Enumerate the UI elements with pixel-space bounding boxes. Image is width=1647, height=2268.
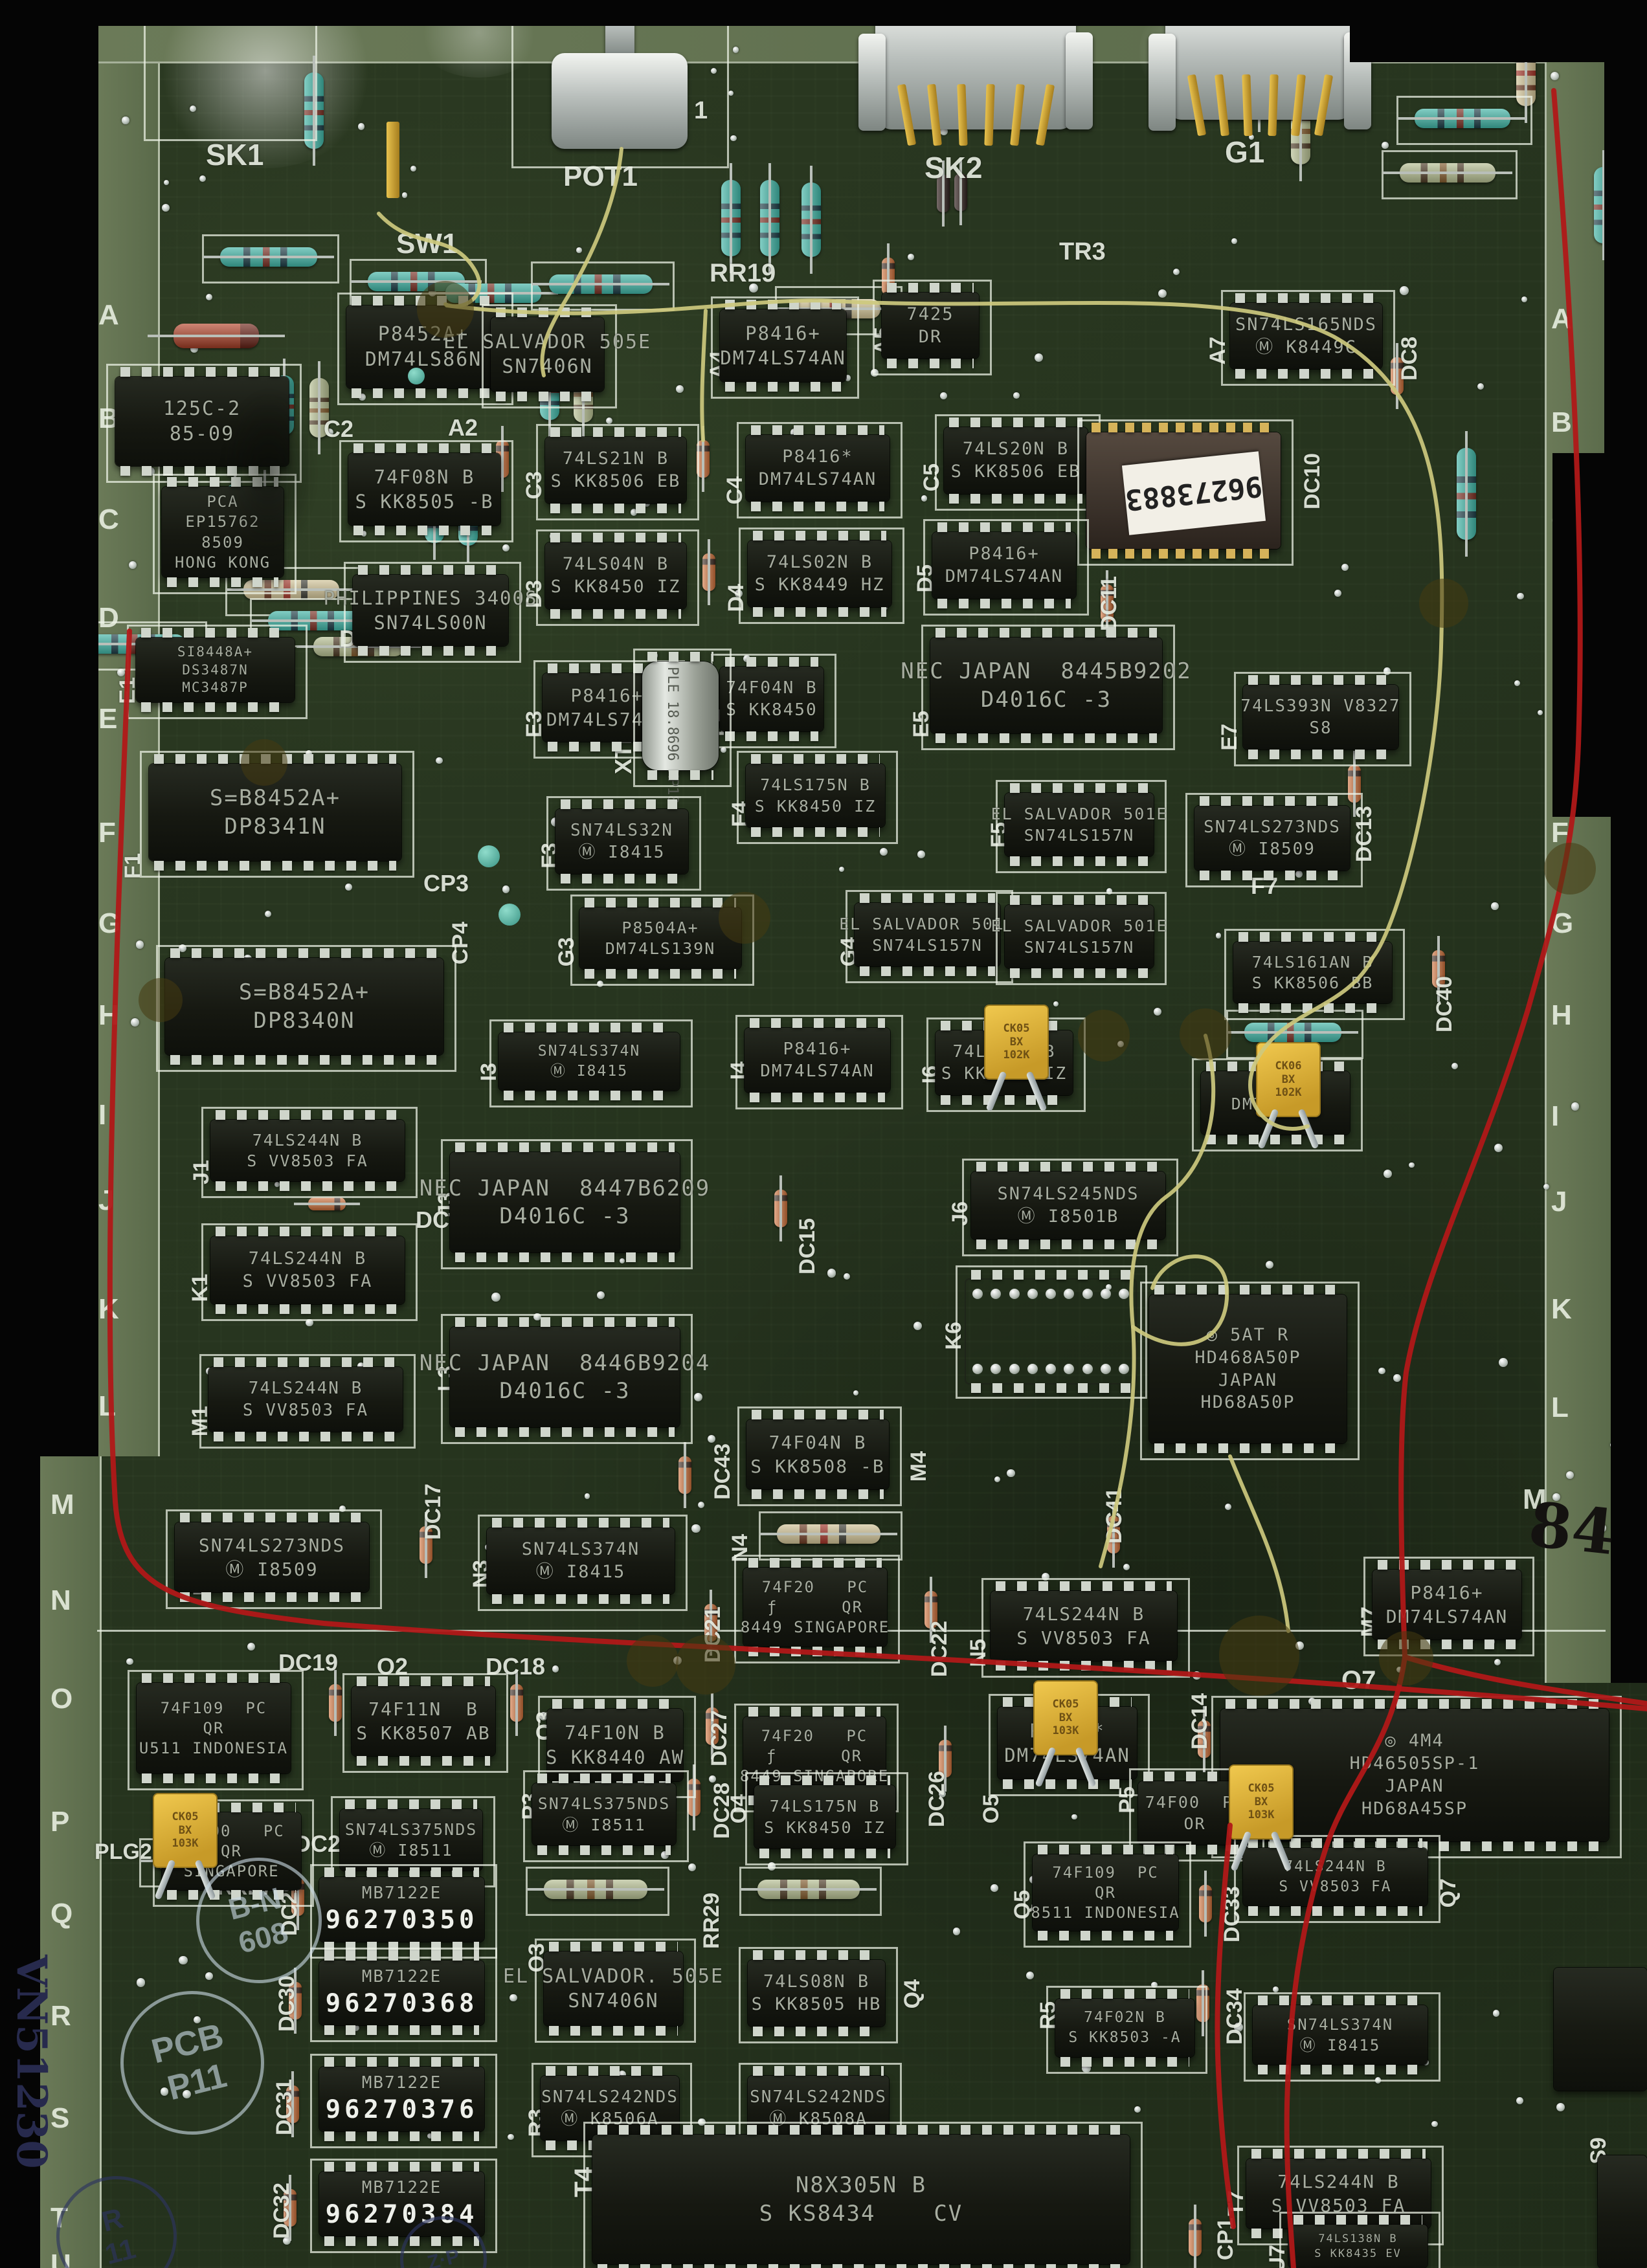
chip-label-line: D4016C -3 xyxy=(499,1378,630,1404)
pcb-board: SK1SW1POT11SK21G1TR3RR19A2A3A4A5A7DC8C2C… xyxy=(0,0,1647,2268)
solder-pad xyxy=(953,1928,960,1935)
capacitor-marking: BX xyxy=(1282,1073,1295,1086)
glass-diode xyxy=(510,1684,523,1722)
resistor xyxy=(1400,163,1496,183)
chip-label-line: 96270376 xyxy=(326,2095,478,2125)
silk-ref-label: DC30 xyxy=(274,1975,300,2032)
solder-pad xyxy=(880,848,888,856)
scanned-pcb-photo: SK1SW1POT11SK21G1TR3RR19A2A3A4A5A7DC8C2C… xyxy=(0,0,1647,2268)
solder-pad xyxy=(1026,1972,1034,1979)
resistor xyxy=(544,1880,647,1899)
chip-label-line: S VV8503 FA xyxy=(243,1271,373,1292)
ic-chip-Q2: MB7122E96270350 xyxy=(319,1877,484,1942)
solder-pad xyxy=(913,1322,922,1330)
edge-letter-right: M xyxy=(1523,1484,1547,1516)
edge-letter-left: D xyxy=(98,602,119,634)
sk2-mount-lug xyxy=(1066,32,1093,129)
ic-chip-K1: 74LS244N BS VV8503 FA xyxy=(210,1236,405,1304)
chip-label-line: SN74LS245NDS xyxy=(997,1184,1139,1205)
edge-letter-left: C xyxy=(98,504,119,536)
ic-chip-Q3: EL SALVADOR. 505ESN7406N xyxy=(544,1951,683,2026)
solder-pad xyxy=(1599,1524,1606,1531)
sw1-gold-pin xyxy=(387,122,399,198)
silk-ref-label: DC11 xyxy=(1097,576,1122,631)
glass-diode xyxy=(678,1456,691,1494)
chip-label-line: Ⓜ I8415 xyxy=(536,1562,626,1583)
silk-ref-label: RR19 xyxy=(710,259,776,288)
resistor xyxy=(1244,1023,1341,1042)
sk2-mount-lug xyxy=(858,34,886,131)
board-edge-margin xyxy=(98,26,160,1456)
edge-letter-left: N xyxy=(50,1584,71,1617)
solder-pad xyxy=(917,850,925,858)
chip-label-line: QR xyxy=(203,1719,225,1737)
socket-pad xyxy=(991,1364,1001,1374)
socket-pad xyxy=(1119,1364,1129,1374)
chip-label-line: NEC JAPAN 8446B9204 xyxy=(420,1350,710,1376)
solder-pad xyxy=(730,135,736,141)
ceramic-capacitor: CK05BX102K xyxy=(984,1005,1049,1080)
chip-label-line: 74F04N B xyxy=(726,678,817,698)
chip-label-line: S VV8503 FA xyxy=(247,1151,368,1171)
chip-label-line: SN74LS157N xyxy=(1024,826,1135,845)
ic-chip-C4: P8416*DM74LS74AN xyxy=(746,435,890,502)
chip-label-line: S KK8507 AB xyxy=(356,1722,490,1744)
solder-pad xyxy=(247,1643,255,1651)
solder-pad xyxy=(1173,269,1180,275)
ic-chip-M7: P8416+DM74LS74AN xyxy=(1372,1570,1521,1640)
silk-ref-label: DC14 xyxy=(1187,1693,1213,1750)
solder-pad xyxy=(733,47,739,52)
chip-label-line: HD68A45SP xyxy=(1361,1799,1468,1819)
chip-label-line: 74F20 PC xyxy=(761,1727,868,1745)
silk-ref-label: G1 xyxy=(1225,135,1264,170)
ic-chip-I3: SN74LS374NⓂ I8415 xyxy=(499,1032,680,1091)
solder-pad xyxy=(436,757,443,764)
solder-pad xyxy=(853,1390,858,1395)
solder-pad xyxy=(1552,1493,1560,1501)
silk-ref-label: DC28 xyxy=(710,1783,735,1839)
solder-pad xyxy=(691,1524,700,1533)
ic-chip-K7: ◎ 5AT RHD468A50PJAPANHD68A50P xyxy=(1149,1295,1347,1443)
ic-chip-N3: SN74LS374NⓂ I8415 xyxy=(487,1528,675,1594)
edge-letter-left: F xyxy=(98,817,116,849)
ic-chip-E7: 74LS393N V8327S8 xyxy=(1243,685,1398,750)
chip-label-line: 74F109 PC xyxy=(161,1699,267,1717)
socket-pad xyxy=(1064,1289,1074,1299)
chip-label-line: 74LS138N B xyxy=(1318,2232,1397,2245)
chip-label-line: S KS8434 CV xyxy=(759,2201,963,2227)
chip-label-line: SN74LS374N xyxy=(1287,2016,1394,2034)
chip-label-line: 125C-2 xyxy=(163,397,241,420)
chip-label-line: NEC JAPAN 8445B9202 xyxy=(901,658,1191,684)
solder-pad xyxy=(1384,1170,1392,1178)
edge-letter-left: K xyxy=(98,1293,119,1326)
ic-chip-F5: EL SALVADOR 501ESN74LS157N xyxy=(1005,793,1154,856)
solder-pad xyxy=(502,544,510,551)
solder-pad xyxy=(1409,1162,1415,1168)
ceramic-capacitor: CK05BX103K xyxy=(153,1793,218,1868)
resistor xyxy=(1415,109,1510,128)
ic-chip-Q5: 74F109 PCQR8511 INDONESIA xyxy=(1033,1854,1178,1931)
ic-chip-J1: 74LS244N BS VV8503 FA xyxy=(210,1120,405,1181)
solder-pad xyxy=(1556,2103,1565,2111)
ic-chip-O1: 74F109 PCQRU511 INDONESIA xyxy=(137,1683,291,1773)
socket-pad xyxy=(1046,1289,1056,1299)
chip-label-line: SN7406N xyxy=(502,355,592,378)
glass-diode xyxy=(702,553,715,591)
edge-letter-left: Q xyxy=(50,1898,73,1930)
solder-pad xyxy=(597,1291,605,1299)
solder-pad xyxy=(1499,1358,1508,1367)
chip-label-line: 74LS161AN B xyxy=(1252,953,1374,972)
ic-chip-M1: 74LS244N BS VV8503 FA xyxy=(208,1367,403,1432)
chip-label-line: SI8448A+ xyxy=(177,644,253,660)
edge-letter-right: J xyxy=(1551,1186,1567,1218)
ic-chip-X2 xyxy=(1598,2155,1647,2268)
chip-label-line: ◎ 4M4 xyxy=(1385,1731,1444,1751)
chip-label-line: 74LS175N B xyxy=(770,1797,880,1816)
ic-chip-M4: 74F04N BS KK8508 -B xyxy=(746,1419,889,1489)
chip-label-line: SN74LS242NDS xyxy=(750,2087,887,2107)
socket-pad xyxy=(1027,1364,1038,1374)
chip-label-line: S KK8450 IZ xyxy=(764,1818,886,1838)
silk-ref-label: CP1 xyxy=(1213,2218,1238,2260)
edge-letter-left: O xyxy=(50,1683,73,1715)
chip-label-line: S KK8506 BB xyxy=(1252,973,1374,993)
solder-pad xyxy=(839,867,844,872)
solder-pad xyxy=(205,1972,213,1980)
chip-label-line: DS3487N xyxy=(182,662,249,678)
solder-pad xyxy=(1334,590,1341,597)
solder-pad xyxy=(1266,1261,1273,1269)
solder-pad xyxy=(410,166,416,172)
solder-pad xyxy=(136,940,144,949)
socket-pad xyxy=(1082,1289,1093,1299)
ic-chip-G4: EL SALVADOR 501ESN74LS157N xyxy=(855,903,1000,966)
edge-letter-left: T xyxy=(50,2202,68,2234)
chip-label-line: P8416+ xyxy=(783,1039,852,1060)
solder-pad xyxy=(552,1665,559,1672)
chip-label-line: S KK8450 xyxy=(726,700,817,720)
chip-label-line: S8 xyxy=(1309,718,1332,739)
chip-label-line: DP8341N xyxy=(224,814,326,839)
solder-pad xyxy=(162,204,170,212)
chip-label-line: EL SALVADOR 505E xyxy=(443,331,651,353)
ic-chip-R5: 74F02N BS KK8503 -A xyxy=(1055,1999,1194,2057)
scanner-background xyxy=(1611,817,1647,1683)
ic-chip-L3: NEC JAPAN 8446B9204D4016C -3 xyxy=(450,1327,680,1427)
solder-pad xyxy=(1393,1374,1401,1382)
chip-label-line: 8449 SINGAPORE xyxy=(741,1618,890,1636)
chip-label-line: D4016C -3 xyxy=(981,687,1112,713)
ceramic-capacitor: CK05BX103K xyxy=(1033,1680,1098,1755)
ic-chip-N4: 74F20 PCƒ QR8449 SINGAPORE xyxy=(743,1568,887,1647)
silk-ref-label: CP3 xyxy=(423,870,469,897)
silk-ref-label: DC17 xyxy=(421,1484,446,1540)
edge-letter-right: B xyxy=(1551,406,1572,439)
chip-label-line: S VV8503 FA xyxy=(1016,1627,1150,1649)
solder-pad xyxy=(194,2016,201,2023)
glass-diode xyxy=(308,1197,346,1210)
solder-pad xyxy=(585,1493,590,1499)
solder-pad xyxy=(345,884,352,891)
solder-pad xyxy=(844,1273,850,1280)
chip-label-line: MB7122E xyxy=(362,1967,442,1987)
solder-pad xyxy=(1225,1504,1231,1510)
solder-pad xyxy=(161,2087,168,2095)
socket-pad-row xyxy=(972,1289,1129,1299)
chip-label-line: S VV8503 FA xyxy=(243,1401,368,1421)
chip-label-line: P8416+ xyxy=(969,544,1040,564)
ic-chip-P3: SN74LS375NDSⓂ I8511 xyxy=(532,1783,676,1845)
solder-pad xyxy=(694,1393,702,1401)
chip-label-line: 74LS244N B xyxy=(252,1131,363,1150)
capacitor-marking: 103K xyxy=(1053,1724,1079,1737)
chip-label-line: 74LS21N B xyxy=(563,449,669,469)
socket-pad xyxy=(991,1289,1001,1299)
solder-pad xyxy=(1400,286,1409,295)
ic-chip-J3: NEC JAPAN 8447B6209D4016C -3 xyxy=(450,1152,680,1252)
solder-pad xyxy=(908,254,914,260)
solder-pad xyxy=(1431,2121,1437,2127)
ic-chip-D1: PHILIPPINES 3400SSN74LS00N xyxy=(353,575,508,646)
disc-capacitor xyxy=(408,368,425,384)
chip-label-line: U511 INDONESIA xyxy=(139,1739,288,1757)
ic-chip-K6 xyxy=(965,1278,1137,1384)
ic-chip-I4: P8416+DM74LS74AN xyxy=(745,1028,890,1093)
ic-chip-A3: EL SALVADOR 505ESN7406N xyxy=(491,317,604,392)
solder-pad xyxy=(1117,1041,1124,1047)
solder-pad xyxy=(1396,1667,1402,1673)
g1-gold-pin xyxy=(1268,74,1278,136)
resistor xyxy=(777,1524,880,1544)
edge-letter-left: I xyxy=(98,1099,106,1131)
chip-label-line: SN74LS273NDS xyxy=(1204,817,1341,838)
silk-ref-label: DC43 xyxy=(710,1443,735,1500)
chip-label-line: 96270368 xyxy=(326,1989,478,2019)
solder-pad xyxy=(1216,933,1221,938)
solder-pad xyxy=(1134,2106,1141,2113)
socket-pad xyxy=(1101,1289,1111,1299)
chip-label-line: P8504A+ xyxy=(622,918,699,938)
socket-pad-row xyxy=(972,1364,1129,1374)
capacitor-marking: CK05 xyxy=(1003,1022,1030,1035)
chip-label-line: P8416+ xyxy=(745,322,821,344)
silk-ref-label: DC41 xyxy=(1102,1487,1127,1544)
silk-ref-label: DC22 xyxy=(927,1621,952,1677)
silk-ref-label: RR29 xyxy=(699,1893,724,1949)
chip-label-line: SN74LS157N xyxy=(872,936,983,955)
chip-label-line: SN74LS375NDS xyxy=(538,1794,671,1814)
solder-pad xyxy=(1158,289,1167,298)
ic-chip-G7: 74LS161AN BS KK8506 BB xyxy=(1233,942,1392,1003)
chip-label-line: MB7122E xyxy=(362,1884,442,1904)
resistor xyxy=(549,274,653,294)
chip-label-line: ◎ 5AT R xyxy=(1207,1325,1290,1346)
chip-label-line: QR xyxy=(1095,1884,1116,1902)
solder-pad xyxy=(576,247,582,253)
solder-pad xyxy=(1231,238,1237,244)
chip-label-line: 74LS244N B xyxy=(249,1379,363,1399)
chip-label-line: S KK8503 -A xyxy=(1068,2029,1181,2047)
chip-label-line: SN74LS374N xyxy=(538,1043,640,1060)
silk-ref-label: M4 xyxy=(906,1451,932,1482)
socket-pad xyxy=(1009,1364,1020,1374)
chip-label-line: JAPAN xyxy=(1218,1370,1277,1391)
chip-label-line: JAPAN xyxy=(1385,1776,1444,1797)
socket-pad xyxy=(1101,1364,1111,1374)
scanner-background xyxy=(1604,26,1647,453)
ic-chip-E5: NEC JAPAN 8445B9202D4016C -3 xyxy=(930,638,1162,733)
chip-label-line: S KK8449 HZ xyxy=(755,575,885,595)
chip-label-line: 74F109 PC xyxy=(1052,1863,1159,1882)
solder-pad xyxy=(994,1476,1000,1482)
chip-label-line: Ⓜ K8449C xyxy=(1255,337,1357,358)
socket-pad xyxy=(1046,1364,1056,1374)
solder-pad xyxy=(131,1018,139,1027)
solder-pad xyxy=(827,1269,836,1278)
scanner-background xyxy=(1350,0,1647,62)
solder-pad xyxy=(940,392,947,399)
ic-chip-T4: N8X305N BS KS8434 CV xyxy=(592,2135,1130,2264)
chip-label-line: 74LS244N B xyxy=(1277,2171,1400,2192)
solder-pad xyxy=(1154,1008,1161,1016)
board-edge-margin xyxy=(40,1456,102,2268)
solder-pad xyxy=(199,175,206,182)
chip-label-line: S KK8506 EB xyxy=(951,461,1081,482)
ic-chip-J6: SN74LS245NDSⓂ I8501B xyxy=(971,1172,1165,1240)
power-diode xyxy=(174,324,259,348)
solder-pad xyxy=(708,1435,715,1443)
glass-diode xyxy=(774,1190,787,1227)
solder-pad xyxy=(1013,392,1020,399)
edge-letter-left: S xyxy=(50,2102,69,2135)
solder-pad xyxy=(1193,1671,1201,1680)
scanner-background xyxy=(0,1456,40,2268)
sk2-gold-pin xyxy=(985,84,995,146)
silk-ref-label: O5 xyxy=(979,1794,1004,1823)
chip-label-line: S=B8452A+ xyxy=(239,979,370,1005)
silk-ref-label: DC15 xyxy=(795,1218,820,1274)
chip-label-line: PHILIPPINES 3400S xyxy=(324,587,538,609)
silk-ref-label: C2 xyxy=(324,416,353,443)
solder-pad xyxy=(921,495,927,501)
ic-chip-DC10: D2732A-396273883 xyxy=(1086,432,1281,549)
capacitor-marking: 102K xyxy=(1003,1049,1030,1062)
capacitor-marking: CK05 xyxy=(1053,1698,1079,1711)
chip-label-line: SN74LS242NDS xyxy=(541,2087,678,2107)
glass-diode xyxy=(1189,2219,1202,2256)
socket-pad xyxy=(972,1364,983,1374)
chip-label-line: Ⓜ I8415 xyxy=(579,843,666,863)
solder-pad xyxy=(1493,2010,1499,2016)
chip-label-line: HD468A50P xyxy=(1194,1348,1301,1368)
chip-label-line: SN74LS157N xyxy=(1024,938,1135,957)
resistor xyxy=(760,180,779,256)
chip-label-line: Ⓜ I8509 xyxy=(1229,839,1316,860)
solder-pad xyxy=(137,1978,146,1987)
chip-label-line: DM74LS74AN xyxy=(1386,1606,1508,1627)
chip-label-line: P8416* xyxy=(782,447,853,467)
chip-label-line: QR xyxy=(221,1842,242,1860)
chip-label-line: 96270350 xyxy=(326,1906,478,1935)
solder-pad xyxy=(510,1994,517,2001)
solder-pad xyxy=(206,294,212,300)
silk-ref-label: A2 xyxy=(448,414,478,441)
chip-label-line: EL SALVADOR 501E xyxy=(991,805,1168,824)
resistor xyxy=(721,180,741,256)
solder-pad xyxy=(1071,1814,1077,1819)
capacitor-marking: 103K xyxy=(1248,1808,1275,1821)
edge-letter-left: J xyxy=(98,1184,114,1217)
edge-letter-right: L xyxy=(1551,1392,1569,1424)
edge-letter-left: E xyxy=(98,703,117,735)
chip-label-line: 74LS08N B xyxy=(763,1972,869,1992)
chip-label-line: NEC JAPAN 8447B6209 xyxy=(420,1175,710,1201)
chip-label-line: 74F02N B xyxy=(1084,2009,1166,2027)
solder-pad xyxy=(1517,593,1524,600)
chip-label-line: OR xyxy=(1183,1814,1205,1834)
solder-pad xyxy=(358,123,364,129)
chip-label-line: SN74LS375NDS xyxy=(345,1820,478,1840)
scanner-background xyxy=(1552,453,1647,817)
silk-ref-label: SW1 xyxy=(396,228,458,260)
edge-letter-right: K xyxy=(1551,1293,1572,1326)
solder-pad xyxy=(1451,1063,1458,1069)
edge-letter-right: H xyxy=(1551,999,1572,1032)
capacitor-marking: BX xyxy=(1010,1036,1023,1049)
solder-pad xyxy=(126,1658,133,1665)
solder-pad xyxy=(1477,383,1484,390)
ic-chip-C5: 74LS20N BS KK8506 EB xyxy=(944,427,1088,494)
capacitor-marking: BX xyxy=(179,1824,192,1837)
solder-pad xyxy=(1521,296,1527,302)
chip-label-line: EL SALVADOR 501E xyxy=(991,917,1168,936)
chip-label-line: 74LS02N B xyxy=(767,552,873,573)
chip-label-line: Ⓜ I8511 xyxy=(562,1816,645,1835)
solder-pad xyxy=(491,1293,500,1301)
solder-pad xyxy=(1273,1986,1279,1992)
ic-chip-Q7: 74LS244N BS VV8503 FA xyxy=(1243,1848,1428,1906)
solder-pad xyxy=(688,1863,696,1871)
chip-label-line: 74LS244N B xyxy=(1284,1858,1386,1876)
chip-label-line: Ⓜ I8501B xyxy=(1018,1206,1119,1227)
chip-label-line: DM74LS74AN xyxy=(759,469,877,490)
ic-chip-XTL1: PLE 18.8696 MP18.20 xyxy=(642,661,719,770)
edge-letter-right: G xyxy=(1551,907,1573,940)
chip-label-line: SN74LS374N xyxy=(522,1539,640,1560)
ic-chip-E4: 74F04N BS KK8450 xyxy=(720,667,823,731)
chip-label-line: DM74LS139N xyxy=(605,939,716,959)
resistor xyxy=(757,1880,860,1899)
chip-label-line: 74LS244N B xyxy=(1023,1603,1145,1625)
solder-pad xyxy=(164,180,169,185)
silk-ref-label: SK1 xyxy=(206,137,263,172)
solder-pad xyxy=(402,192,408,198)
pot1-body xyxy=(552,53,688,149)
ic-chip-F4: 74LS175N BS KK8450 IZ xyxy=(746,764,885,827)
silk-ref-label: SK2 xyxy=(924,150,982,185)
scanner-background xyxy=(0,26,98,1456)
solder-pad xyxy=(1053,1001,1059,1006)
silk-ref-label: DC32 xyxy=(269,2183,295,2239)
chip-label-line: 7425 xyxy=(906,304,954,325)
ic-chip-P2: SN74LS375NDSⓂ I8511 xyxy=(340,1809,482,1871)
chip-label-line: 74F11N B xyxy=(368,1698,478,1720)
chip-label-line: 74F08N B xyxy=(374,466,475,488)
ceramic-capacitor: CK06BX102K xyxy=(1256,1042,1321,1117)
